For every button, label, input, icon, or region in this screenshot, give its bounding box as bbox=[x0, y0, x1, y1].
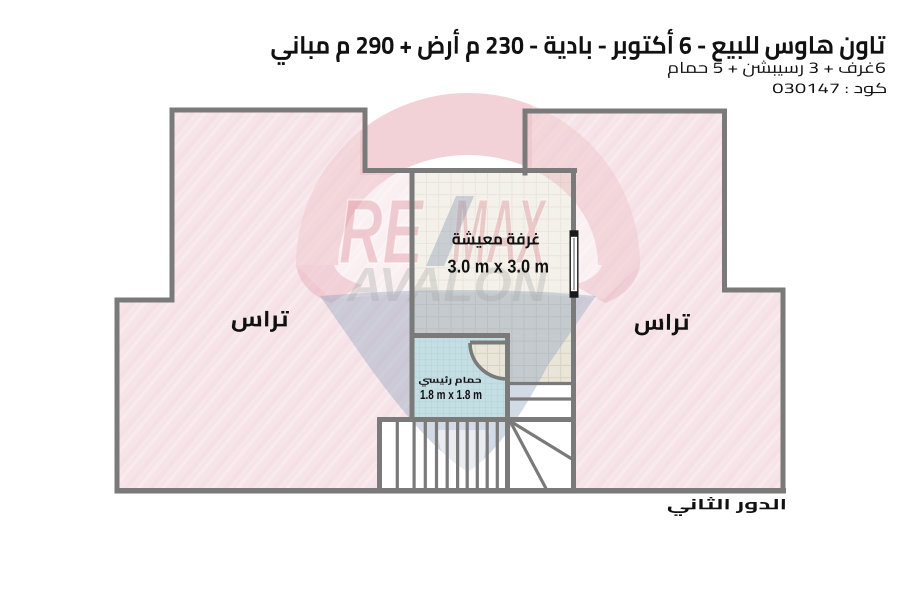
svg-text:3.0 m x 3.0 m: 3.0 m x 3.0 m bbox=[448, 256, 550, 277]
svg-text:1.8 m x 1.8 m: 1.8 m x 1.8 m bbox=[420, 387, 482, 402]
